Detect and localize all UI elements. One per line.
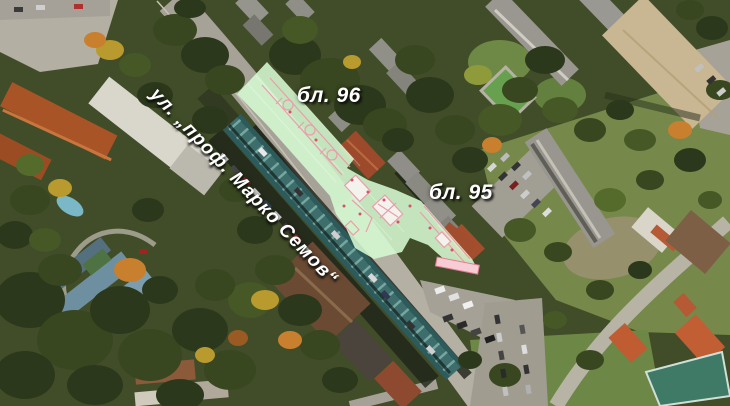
- map-viewport: бл. 96 бл. 95 ул. „проф. Марко Семов“: [0, 0, 730, 406]
- label-block-96: бл. 96: [297, 84, 361, 108]
- aerial-imagery: [0, 0, 730, 406]
- label-block-95: бл. 95: [429, 181, 493, 205]
